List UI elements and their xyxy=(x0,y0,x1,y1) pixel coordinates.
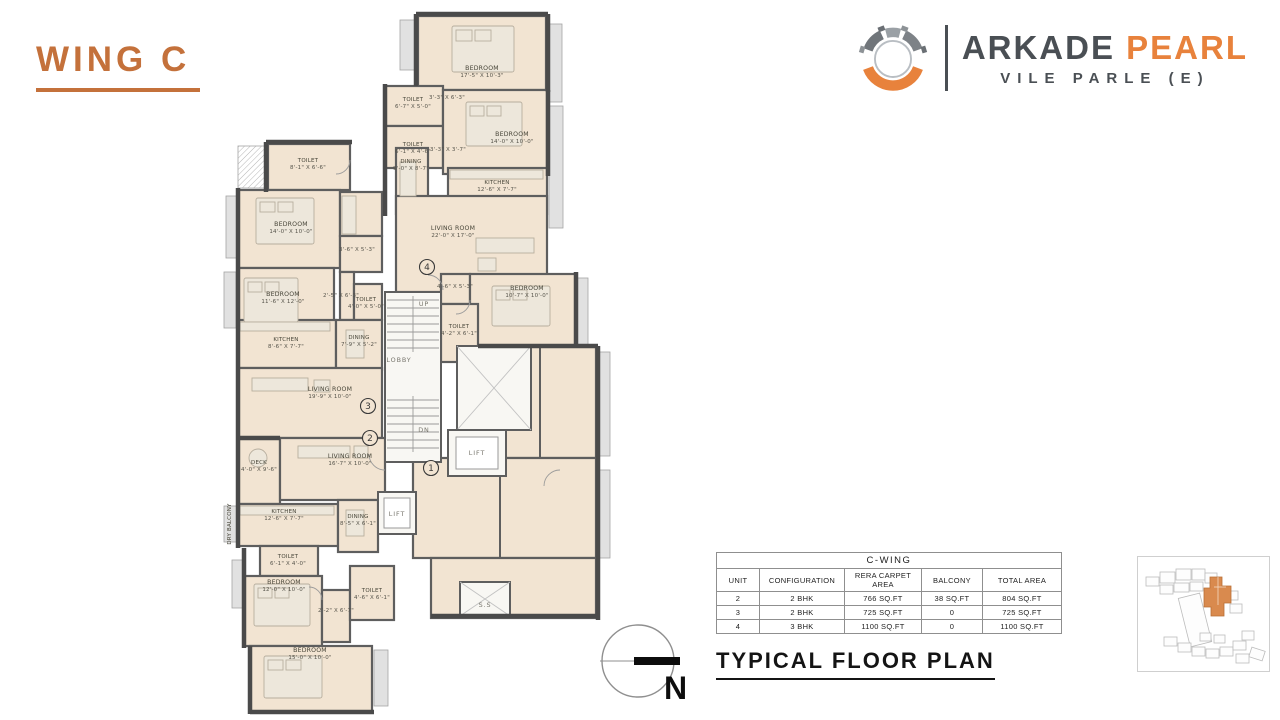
column-header: BALCONY xyxy=(922,569,983,592)
unit-marker: 2 xyxy=(363,431,378,446)
table-cell: 766 SQ.FT xyxy=(845,592,922,606)
logo-text: ARKADE PEARL VILE PARLE (E) xyxy=(962,29,1248,87)
table-cell: 3 xyxy=(717,606,760,620)
table-cell: 1100 SQ.FT xyxy=(845,620,922,634)
column-header: RERA CARPET AREA xyxy=(845,569,922,592)
unit-marker: 1 xyxy=(424,461,439,476)
unit-marker: 4 xyxy=(420,260,435,275)
table-cell: 1100 SQ.FT xyxy=(983,620,1062,634)
table-row: 22 BHK766 SQ.FT38 SQ.FT804 SQ.FT xyxy=(717,592,1062,606)
brand-name-primary: ARKADE xyxy=(962,29,1115,66)
room-label: 3'-3" X 6'-3" xyxy=(429,95,465,101)
column-header: TOTAL AREA xyxy=(983,569,1062,592)
area-table-headrow: UNITCONFIGURATIONRERA CARPET AREABALCONY… xyxy=(717,569,1062,592)
room-label: DRY BALCONY xyxy=(227,503,233,545)
north-label: N xyxy=(664,670,687,707)
brand-location: VILE PARLE (E) xyxy=(1000,70,1209,87)
room-label: 3'-3" X 3'-7" xyxy=(430,147,466,153)
brochure-page: BEDROOM17'-5" X 10'-3"TOILET6'-7" X 5'-0… xyxy=(0,0,1280,720)
area-table-title: C-WING xyxy=(717,553,1062,569)
table-cell: 2 xyxy=(717,592,760,606)
table-row: 43 BHK1100 SQ.FT01100 SQ.FT xyxy=(717,620,1062,634)
brand-logo: ARKADE PEARL VILE PARLE (E) xyxy=(855,20,1248,96)
compass-graphic xyxy=(598,620,710,718)
unit-marker: 3 xyxy=(361,399,376,414)
table-cell: 2 BHK xyxy=(760,592,845,606)
core-label: DN xyxy=(418,426,430,434)
svg-text:4: 4 xyxy=(424,263,430,273)
floor-plan: BEDROOM17'-5" X 10'-3"TOILET6'-7" X 5'-0… xyxy=(0,0,1280,720)
core-label: UP xyxy=(419,300,429,308)
column-header: UNIT xyxy=(717,569,760,592)
core-label: S.S xyxy=(479,601,492,609)
core-label: LOBBY xyxy=(386,356,411,364)
table-cell: 725 SQ.FT xyxy=(983,606,1062,620)
room-label: 3'-6" X 5'-3" xyxy=(339,247,375,253)
core-label: LIFT xyxy=(389,510,406,518)
brand-emblem-icon xyxy=(855,20,931,96)
page-title: WING C xyxy=(36,40,200,92)
table-cell: 725 SQ.FT xyxy=(845,606,922,620)
column-header: CONFIGURATION xyxy=(760,569,845,592)
svg-text:1: 1 xyxy=(428,464,434,474)
table-cell: 2 BHK xyxy=(760,606,845,620)
table-cell: 0 xyxy=(922,620,983,634)
site-map xyxy=(1137,556,1270,672)
room-label: KITCHEN8'-6" X 7'-7" xyxy=(268,337,304,350)
site-map-graphic xyxy=(1138,557,1269,671)
room-label: 2'-5" X 6'-3" xyxy=(323,293,359,299)
room-label: 2'-2" X 6'-7" xyxy=(318,608,354,614)
table-cell: 38 SQ.FT xyxy=(922,592,983,606)
table-cell: 0 xyxy=(922,606,983,620)
table-cell: 804 SQ.FT xyxy=(983,592,1062,606)
area-table-body: 22 BHK766 SQ.FT38 SQ.FT804 SQ.FT32 BHK72… xyxy=(717,592,1062,634)
svg-text:3: 3 xyxy=(365,402,371,412)
table-row: 32 BHK725 SQ.FT0725 SQ.FT xyxy=(717,606,1062,620)
area-table: C-WING UNITCONFIGURATIONRERA CARPET AREA… xyxy=(716,552,1062,634)
area-table-titlerow: C-WING xyxy=(717,553,1062,569)
svg-text:2: 2 xyxy=(367,434,373,444)
brand-name-accent: PEARL xyxy=(1126,29,1248,66)
table-cell: 4 xyxy=(717,620,760,634)
north-compass-icon: N xyxy=(598,620,710,718)
brand-name: ARKADE PEARL xyxy=(962,29,1248,67)
plan-caption: TYPICAL FLOOR PLAN xyxy=(716,648,995,680)
logo-divider xyxy=(945,25,948,91)
core-label: LIFT xyxy=(469,449,486,457)
room-label: 4'-6" X 5'-3" xyxy=(437,284,473,290)
table-cell: 3 BHK xyxy=(760,620,845,634)
